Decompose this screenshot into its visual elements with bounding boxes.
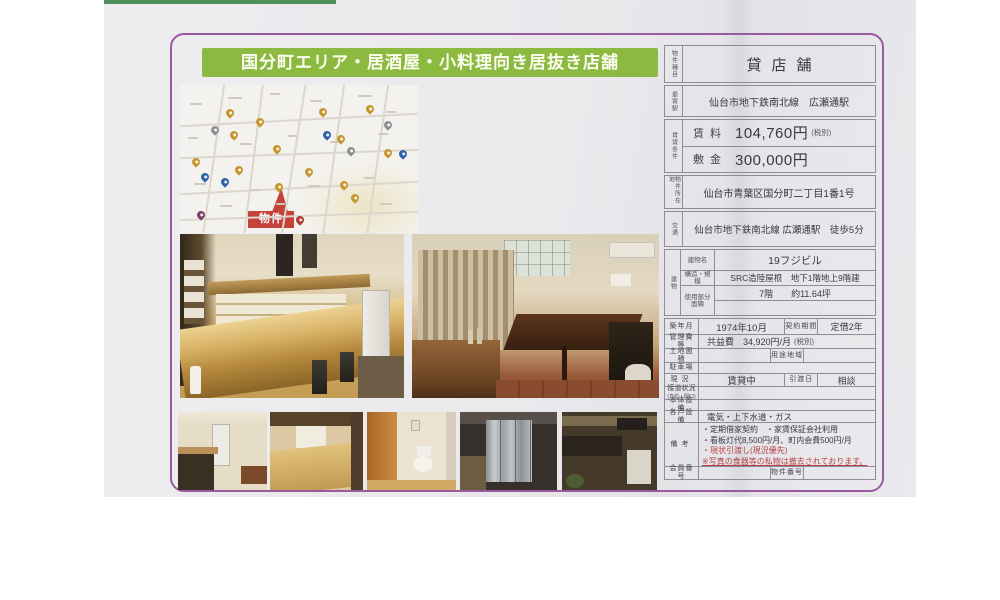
built-label: 築年月	[665, 319, 699, 334]
photo-kitchen-counter	[270, 412, 363, 490]
map-pin-icon	[382, 119, 393, 130]
map-text-smudge	[240, 143, 252, 145]
floor-area-empty	[715, 300, 875, 315]
access-value: 仙台市地下鉄南北線 広瀬通駅 徒歩5分	[683, 212, 875, 246]
floor-area-value: 7階 約11.64坪	[715, 286, 875, 300]
map-pin-icon	[364, 103, 375, 114]
land-area-value	[699, 349, 770, 362]
building-name-label: 建物名	[681, 250, 715, 270]
property-detail-table: 物件種目 貸店舗 最寄駅 仙台市地下鉄南北線 広瀬通駅 賃貸条件 賃料 104,…	[664, 45, 876, 482]
map-text-smudge	[380, 203, 392, 205]
parking-label: 駐車場	[665, 363, 699, 373]
map-text-smudge	[270, 93, 280, 95]
map-text-smudge	[188, 137, 198, 139]
terms-label: 賃貸条件	[665, 120, 683, 172]
map-text-smudge	[358, 95, 372, 97]
property-type-label: 物件種目	[665, 46, 683, 82]
map-text-smudge	[220, 205, 232, 207]
management-value: 共益費 34,920円/月	[707, 335, 791, 348]
deposit-label: 敷金	[693, 151, 727, 167]
zoning-label: 用途地域	[770, 349, 804, 362]
map-pin-icon	[303, 166, 314, 177]
flyer-sheet: 国分町エリア・居酒屋・小料理向き居抜き店舗 物件	[170, 33, 884, 492]
flyer-paper: 国分町エリア・居酒屋・小料理向き居抜き店舗 物件	[104, 0, 916, 497]
property-no-value	[804, 467, 875, 479]
map-street-line	[200, 85, 225, 233]
contract-value: 定借2年	[818, 319, 875, 334]
parking-value	[699, 363, 875, 373]
unit-equipment-value: 電気・上下水道・ガス	[699, 411, 875, 422]
building-label: 建物	[665, 250, 681, 315]
property-badge: 物件	[248, 211, 294, 228]
property-no-label: 物件番号	[770, 467, 804, 479]
property-type-value: 貸店舗	[683, 46, 875, 82]
body-equipment-value	[699, 400, 875, 410]
status-value: 賃貸中	[699, 374, 784, 386]
access-label: 交通	[665, 212, 683, 246]
map-pin-icon	[345, 145, 356, 156]
map-pin-icon	[224, 107, 235, 118]
flyer-title: 国分町エリア・居酒屋・小料理向き居抜き店舗	[202, 48, 658, 77]
map-street-line	[180, 149, 418, 159]
deposit-value: 300,000円	[735, 149, 808, 170]
structure-value: SRC造陸屋根 地下1階地上9階建	[715, 271, 875, 285]
map-pin-icon	[209, 124, 220, 135]
map-text-smudge	[308, 185, 320, 187]
map-text-smudge	[288, 135, 297, 137]
map-pin-icon	[219, 176, 230, 187]
map-pin-icon	[321, 129, 332, 140]
management-label: 管理費等	[665, 335, 699, 348]
remarks-label: 備考	[665, 423, 699, 466]
floor-area-label: 使用部分面積	[681, 286, 715, 315]
building-name-value: 19フジビル	[715, 250, 875, 270]
address-value: 仙台市青葉区国分町二丁目1番1号	[683, 176, 875, 208]
photo-small-interior	[178, 412, 267, 490]
photo-restroom	[367, 412, 456, 490]
map-text-smudge	[250, 189, 260, 191]
map-text-smudge	[310, 100, 322, 102]
station-label: 最寄駅	[665, 86, 683, 116]
land-area-label: 土地面積	[665, 349, 699, 362]
handover-value: 相談	[818, 374, 875, 386]
member-no-label: 会員番号	[665, 467, 699, 479]
handover-label: 引渡日	[784, 374, 818, 386]
photo-dining-area	[412, 234, 659, 398]
rent-label: 賃料	[693, 125, 727, 141]
map-text-smudge	[190, 103, 202, 105]
photo-kitchen-fridges	[460, 412, 557, 490]
map-text-smudge	[228, 97, 242, 99]
map-pin-icon	[317, 106, 328, 117]
member-no-value	[699, 467, 770, 479]
remarks-text: ・定期借家契約 ・家賃保証会社利用 ・看板灯代8,500円/月、町内会費500円…	[699, 423, 875, 466]
road-value	[699, 387, 875, 399]
map-pin-icon	[273, 181, 284, 192]
map-text-smudge	[386, 111, 396, 113]
map-text-smudge	[378, 133, 388, 135]
built-value: 1974年10月	[699, 319, 784, 334]
map-pin-icon	[228, 129, 239, 140]
location-map: 物件	[180, 85, 418, 233]
photo-counter-bar-interior	[180, 234, 404, 398]
unit-equipment-label: 各戸設備	[665, 411, 699, 422]
photo-kitchen-equipment	[562, 412, 657, 490]
map-text-smudge	[364, 177, 374, 179]
map-pin-icon	[233, 164, 244, 175]
rent-value: 104,760円	[735, 122, 808, 143]
rent-note: (税別)	[811, 127, 831, 138]
map-text-smudge	[276, 203, 285, 205]
map-text-smudge	[194, 183, 206, 185]
contract-label: 契約期間	[784, 319, 818, 334]
structure-label: 構造・規模	[681, 271, 715, 285]
zoning-value	[804, 349, 875, 362]
management-note: (税別)	[794, 336, 814, 347]
station-value: 仙台市地下鉄南北線 広瀬通駅	[683, 86, 875, 116]
green-surface-edge	[104, 0, 336, 4]
address-label: 物件所在地	[665, 176, 683, 208]
